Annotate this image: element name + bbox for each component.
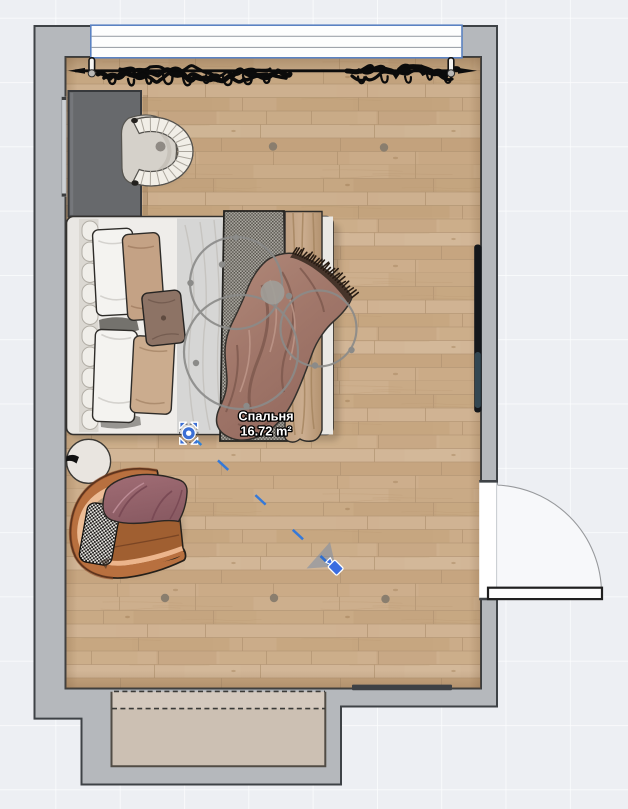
svg-text:Спальня: Спальня [238, 409, 293, 424]
svg-text:16.72 m²: 16.72 m² [240, 424, 291, 439]
